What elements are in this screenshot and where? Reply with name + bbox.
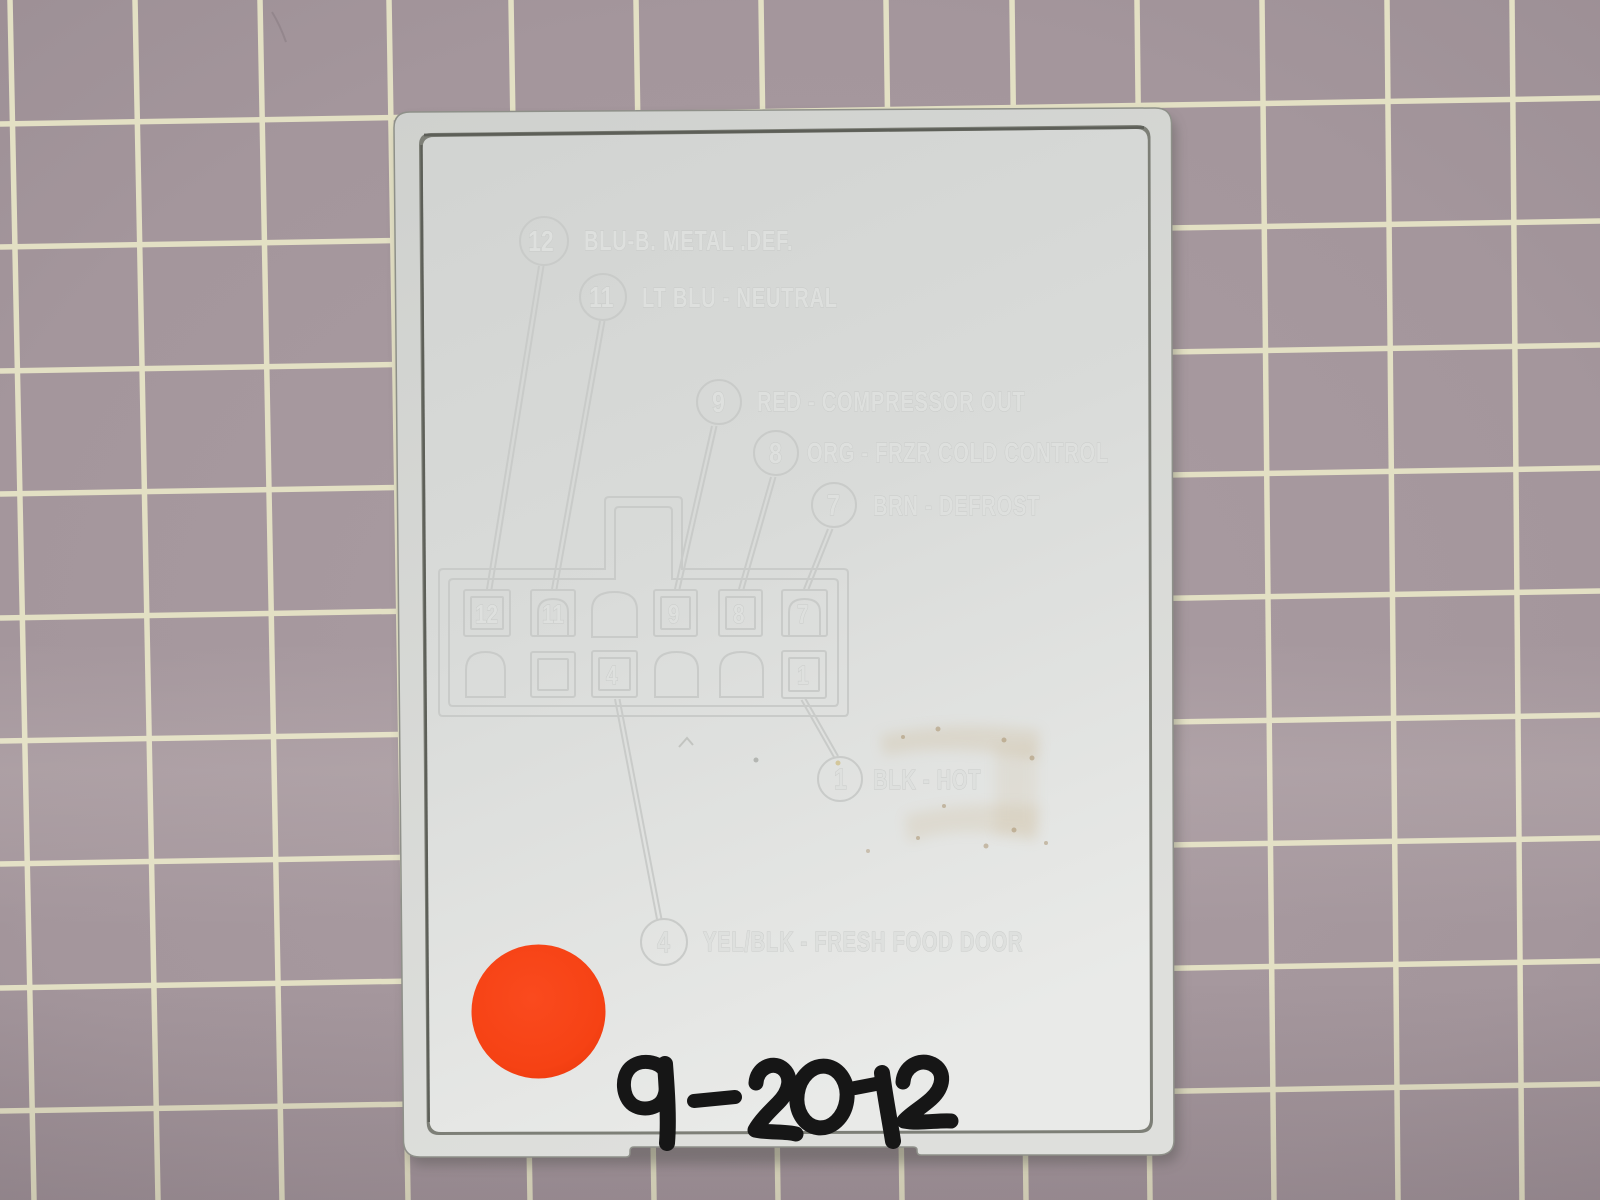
- svg-text:BLU-B. METAL .DEF.: BLU-B. METAL .DEF.: [584, 226, 793, 257]
- svg-text:ORG - FRZR COLD CONTROL: ORG - FRZR COLD CONTROL: [807, 438, 1109, 469]
- svg-text:BRN - DEFROST: BRN - DEFROST: [873, 491, 1040, 522]
- svg-text:BLK - HOT: BLK - HOT: [873, 765, 981, 796]
- svg-text:9: 9: [712, 385, 725, 418]
- svg-text:1: 1: [834, 762, 847, 795]
- svg-text:7: 7: [827, 488, 840, 521]
- svg-text:LT BLU - NEUTRAL: LT BLU - NEUTRAL: [642, 283, 838, 314]
- svg-text:RED - COMPRESSOR OUT: RED - COMPRESSOR OUT: [757, 387, 1025, 418]
- svg-text:11: 11: [542, 600, 564, 629]
- svg-text:4: 4: [657, 925, 670, 958]
- svg-text:12: 12: [475, 600, 498, 629]
- svg-text:4: 4: [606, 661, 618, 690]
- svg-text:YEL/BLK - FRESH FOOD DOOR: YEL/BLK - FRESH FOOD DOOR: [703, 927, 1023, 958]
- svg-text:8: 8: [733, 600, 745, 629]
- svg-text:9: 9: [668, 600, 680, 629]
- svg-text:12: 12: [528, 224, 554, 257]
- svg-text:11: 11: [589, 280, 614, 313]
- svg-text:8: 8: [769, 436, 782, 469]
- svg-text:7: 7: [797, 600, 809, 629]
- svg-text:1: 1: [797, 661, 809, 690]
